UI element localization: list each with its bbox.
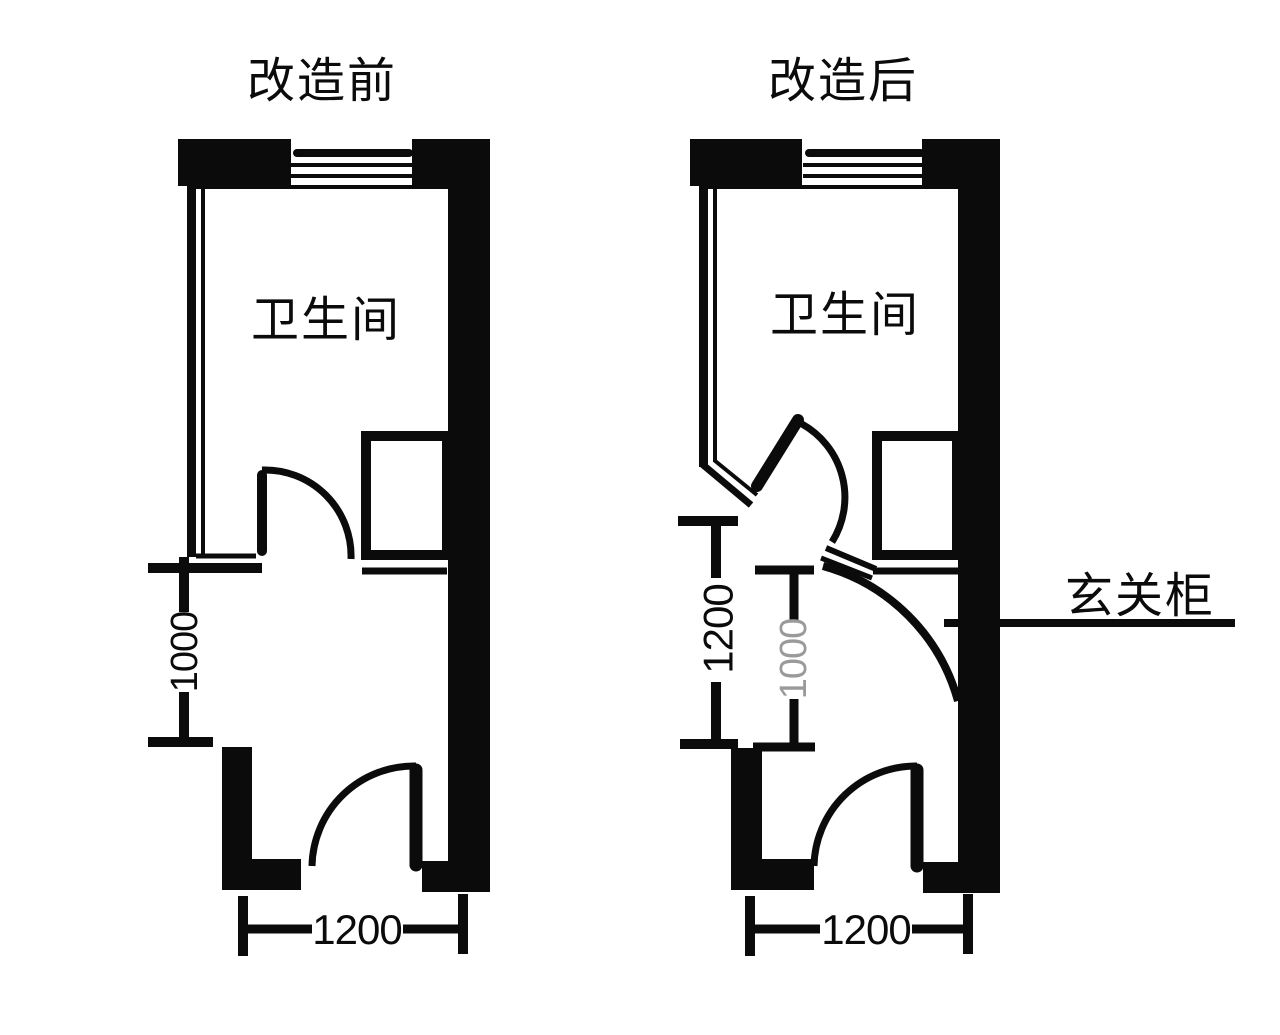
dimension-hallway-depth: 1000	[148, 557, 262, 742]
callout-label: 玄关柜	[1065, 568, 1215, 624]
floor-plan-diagram: 改造前 卫	[0, 0, 1280, 1035]
door-swing-arc	[802, 424, 845, 542]
plan-before-title: 改造前	[247, 53, 397, 109]
door-swing-arc	[262, 470, 351, 559]
dimension-label: 1000	[164, 612, 206, 693]
door-leaf	[757, 420, 798, 486]
fixture-cabinet	[362, 436, 447, 571]
floor-plan-svg: 改造前 卫	[0, 0, 1280, 1035]
dimension-corridor-depth: 1200	[678, 521, 742, 744]
room-label: 卫生间	[251, 292, 401, 348]
window-icon	[291, 153, 412, 176]
dimension-hallway-depth: 1000	[753, 570, 815, 747]
plan-before: 改造前 卫	[148, 53, 490, 956]
wall-block	[178, 139, 291, 186]
bathroom-door-icon	[757, 420, 845, 542]
plan-after: 改造后	[678, 53, 1235, 956]
dimension-label: 1200	[312, 906, 401, 953]
left-wall	[699, 186, 757, 505]
dimension-label: 1200	[695, 584, 742, 673]
room-label: 卫生间	[770, 287, 920, 343]
hall-door-swing-arc	[823, 566, 958, 701]
entry-wall	[222, 747, 301, 890]
dimension-label: 1200	[821, 906, 910, 953]
window-icon	[803, 153, 924, 176]
entry-door-icon	[814, 766, 917, 866]
fixture-cabinet	[873, 436, 958, 571]
dimension-entry-width: 1200	[750, 894, 968, 956]
top-wall	[690, 139, 1000, 187]
left-wall	[187, 186, 203, 557]
entry-wall	[731, 748, 814, 890]
door-swing-arc	[814, 766, 917, 866]
top-wall	[178, 139, 490, 187]
wall-block	[690, 139, 802, 186]
entry-door-icon	[312, 766, 416, 866]
door-swing-arc	[312, 766, 416, 866]
bathroom-door-icon	[262, 470, 351, 559]
dimension-label: 1000	[773, 619, 815, 700]
dimension-entry-width: 1200	[243, 894, 463, 956]
plan-after-title: 改造后	[768, 53, 918, 109]
